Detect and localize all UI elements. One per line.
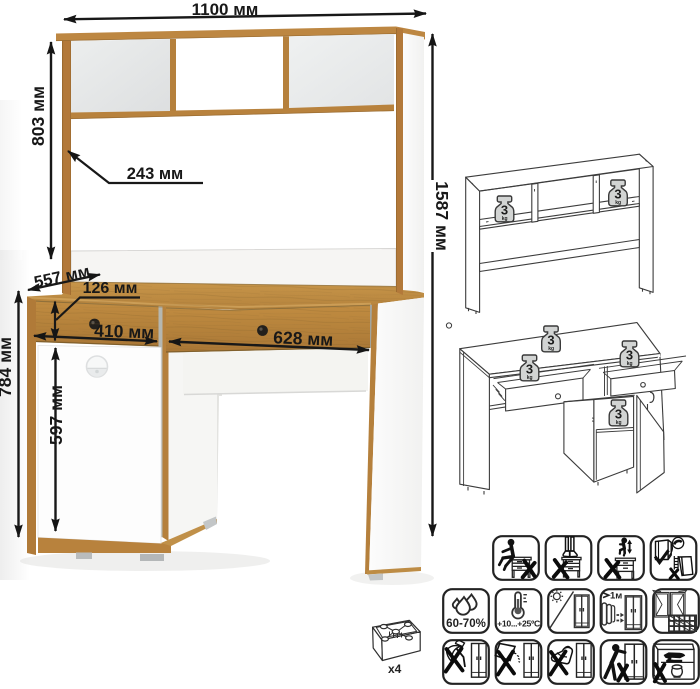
svg-text:243 мм: 243 мм bbox=[127, 165, 184, 183]
svg-text:628 мм: 628 мм bbox=[273, 327, 334, 350]
svg-text:+10...+25ºC: +10...+25ºC bbox=[497, 619, 541, 629]
svg-text:126 мм: 126 мм bbox=[83, 280, 138, 297]
svg-text:1587 мм: 1587 мм bbox=[432, 181, 452, 251]
svg-text:60-70%: 60-70% bbox=[446, 618, 486, 630]
svg-text:597 мм: 597 мм bbox=[46, 385, 66, 445]
svg-text:410 мм: 410 мм bbox=[94, 320, 155, 342]
svg-text:x4: x4 bbox=[388, 662, 402, 676]
svg-text:803 мм: 803 мм bbox=[28, 86, 48, 146]
svg-text:1м: 1м bbox=[610, 591, 622, 602]
svg-text:784 мм: 784 мм bbox=[0, 337, 15, 397]
svg-text:1100 мм: 1100 мм bbox=[192, 0, 259, 19]
